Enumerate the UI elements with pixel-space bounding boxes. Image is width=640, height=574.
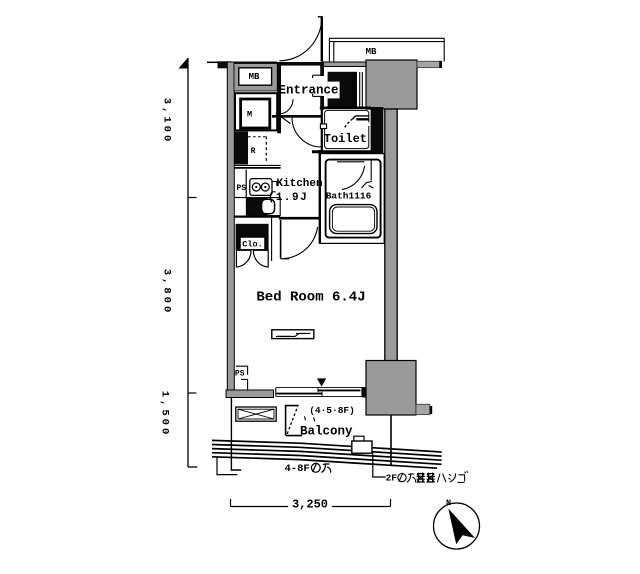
svg-text:R: R xyxy=(251,147,256,156)
svg-text:Kitchen: Kitchen xyxy=(276,178,322,190)
svg-text:(1.9J: (1.9J xyxy=(268,192,309,204)
svg-text:4-8F: 4-8F xyxy=(285,463,310,475)
svg-text:Toilet: Toilet xyxy=(324,132,367,146)
svg-text:Clo.: Clo. xyxy=(242,239,262,249)
svg-text:3,800: 3,800 xyxy=(161,269,173,316)
svg-text:2F: 2F xyxy=(386,472,398,483)
svg-text:N: N xyxy=(446,498,451,508)
svg-text:PS: PS xyxy=(235,370,245,379)
svg-text:Balcony: Balcony xyxy=(300,424,353,438)
svg-text:3,250: 3,250 xyxy=(292,498,328,512)
svg-text:3,100: 3,100 xyxy=(161,98,173,145)
svg-text:(4·5·8F): (4·5·8F) xyxy=(309,405,355,416)
svg-text:MB: MB xyxy=(249,72,260,82)
svg-text:Entrance: Entrance xyxy=(278,84,338,98)
svg-text:Bath1116: Bath1116 xyxy=(326,191,372,202)
svg-text:PS: PS xyxy=(236,184,246,193)
svg-text:Bed Room 6.4J: Bed Room 6.4J xyxy=(256,290,365,306)
svg-text:M: M xyxy=(247,109,252,119)
svg-text:MB: MB xyxy=(366,47,377,57)
svg-text:1,500: 1,500 xyxy=(159,391,171,438)
